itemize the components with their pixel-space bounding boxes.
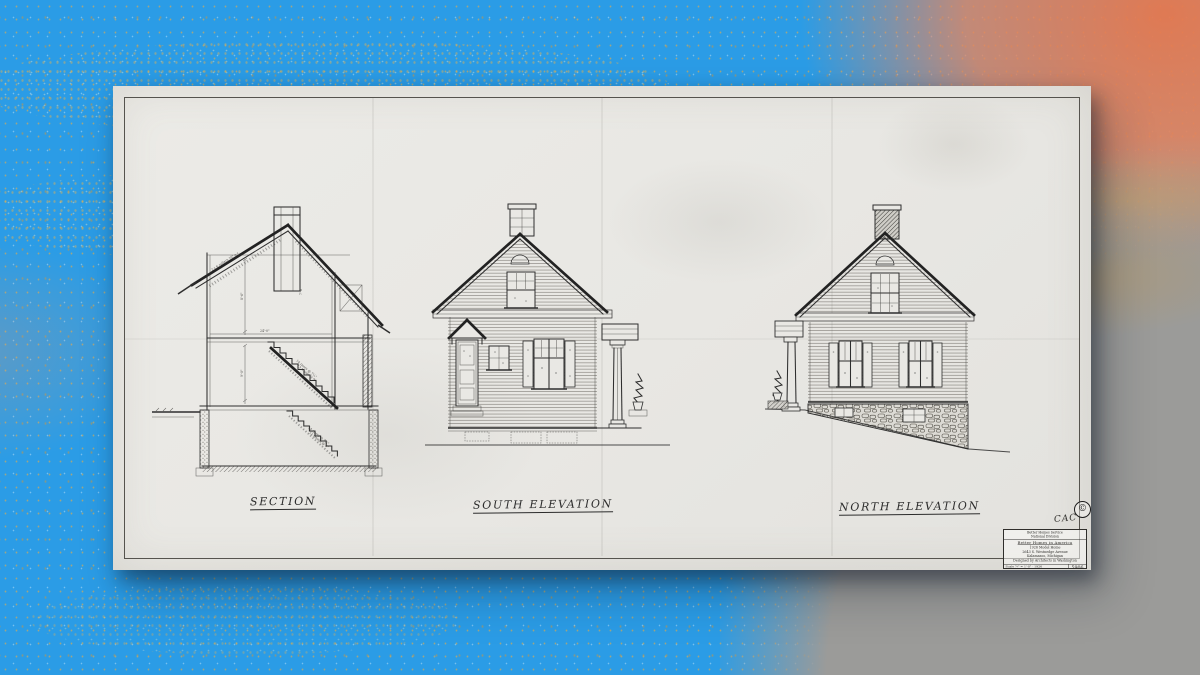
section-foundation — [152, 408, 382, 476]
south-small-window — [486, 346, 512, 370]
checker-initials: CAC — [1054, 513, 1078, 525]
roof-note: 2 x 6 rafters 16" o.c. — [210, 250, 240, 271]
north-gable-window — [868, 273, 902, 313]
north-shuttered-window — [829, 341, 872, 387]
north-elevation-label: North Elevation — [839, 499, 980, 515]
section-chimney — [274, 207, 300, 291]
north-shrub — [768, 371, 788, 409]
north-elevation-drawing — [765, 203, 1010, 463]
drawing-number: 5906 — [1069, 564, 1087, 569]
south-elevation-label: South Elevation — [473, 497, 613, 513]
dimension-label: 24'-0" — [260, 329, 270, 333]
dimension-label: 8'-6" — [240, 292, 244, 300]
title-block: Better Homes Service National Division B… — [1003, 529, 1087, 569]
section-dimensions: 9'-0" 8'-6" 7'-6" 24'-0" — [210, 258, 332, 404]
north-shuttered-window — [899, 341, 942, 387]
south-shuttered-window — [523, 339, 575, 389]
section-drawing: 2 x 6 rafters 16" o.c. — [150, 185, 430, 485]
blueprint-sheet: 2 x 6 rafters 16" o.c. — [113, 86, 1091, 570]
dimension-label: 9'-0" — [240, 369, 244, 377]
south-porch-column — [597, 324, 641, 428]
title-block-footer: Scale ¼" = 1'-0" · 1926 5906 — [1004, 564, 1086, 569]
project-credit: Designed by Architects in Washington — [1006, 559, 1085, 563]
scale-note: Scale ¼" = 1'-0" · 1926 — [1004, 564, 1069, 569]
title-block-body: Better Homes in America 1926 Model Home … — [1004, 540, 1086, 565]
title-block-header: Better Homes Service National Division — [1004, 530, 1086, 540]
painted-background: 2 x 6 rafters 16" o.c. — [0, 0, 1200, 675]
copyright-stamp-icon: © — [1074, 501, 1091, 518]
south-shrub — [629, 374, 647, 416]
copyright-glyph: © — [1078, 505, 1087, 514]
dimension-label: 7'-6" — [299, 287, 303, 295]
section-stairs: 14 risers @ 7½" 13 treads @ 9" 14 risers… — [268, 342, 337, 459]
south-chimney — [508, 204, 536, 236]
section-label: Section — [250, 495, 316, 511]
south-gable-window — [504, 272, 538, 308]
title-block-header-line: National Division — [1006, 535, 1085, 539]
south-elevation-drawing — [425, 200, 670, 455]
